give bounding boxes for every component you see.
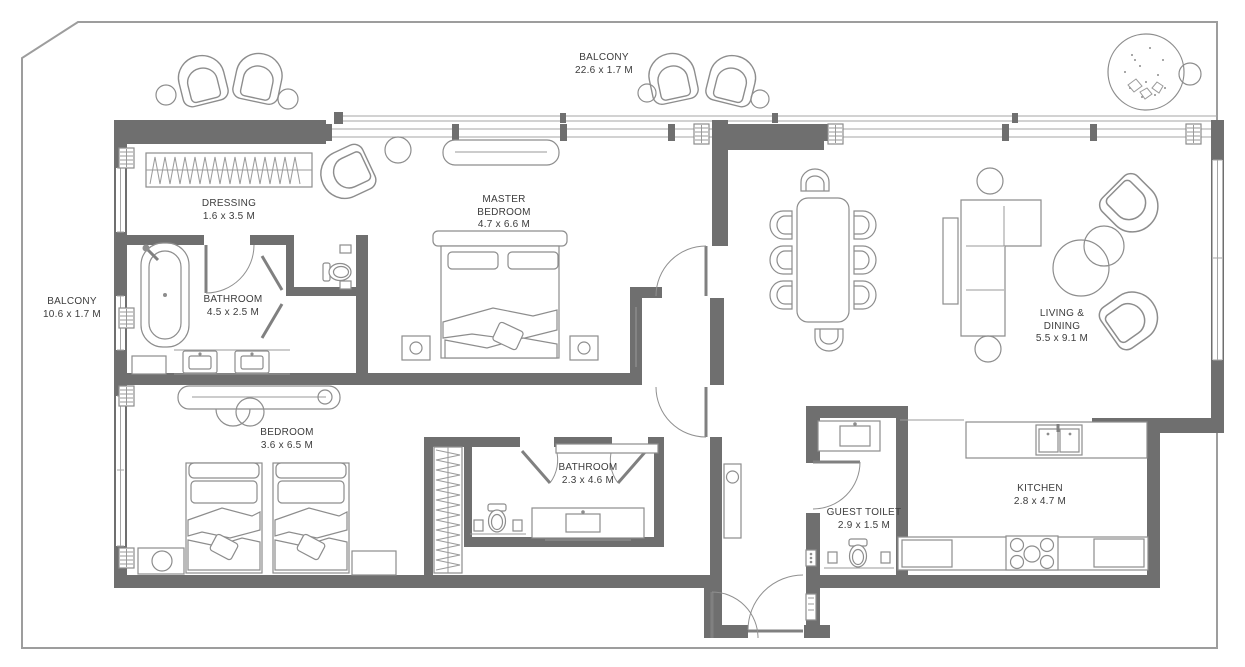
room-dims: 4.7 x 6.6 M (477, 219, 530, 232)
room-label-dressing: DRESSING 1.6 x 3.5 M (202, 198, 256, 223)
nightstand-icon (138, 548, 184, 574)
dining-table-icon (797, 198, 849, 322)
armchair-icon (1095, 169, 1167, 241)
plant-icon (977, 168, 1003, 194)
room-label-living-dining: LIVING & DINING 5.5 x 9.1 M (1036, 308, 1088, 346)
room-name: BEDROOM (477, 207, 530, 220)
master-wc-area (323, 245, 351, 289)
master-bed-icon (433, 231, 567, 358)
dining-set (770, 169, 876, 351)
room-label-guest-toilet: GUEST TOILET 2.9 x 1.5 M (827, 507, 902, 532)
room-name: LIVING & (1036, 308, 1088, 321)
armchair-icon (313, 141, 379, 206)
vanity-icon (532, 508, 644, 538)
floor-plan: BALCONY 22.6 x 1.7 M BALCONY 10.6 x 1.7 … (0, 0, 1245, 667)
sofa-side-table (943, 218, 958, 304)
room-dims: 3.6 x 6.5 M (260, 440, 313, 453)
room-label-master-bathroom: BATHROOM 4.5 x 2.5 M (203, 294, 262, 319)
nightstand-icon (570, 336, 598, 360)
balcony-railing (334, 112, 1217, 124)
coffee-table-icon (1053, 240, 1109, 296)
plant-icon (975, 336, 1001, 362)
room-name: DRESSING (202, 198, 256, 211)
room-name: MASTER (477, 194, 530, 207)
room-dims: 5.5 x 9.1 M (1036, 333, 1088, 346)
dressing-wardrobe (146, 153, 312, 187)
bench-icon (352, 551, 396, 575)
room-dims: 4.5 x 2.5 M (203, 307, 262, 320)
accessory-icon (340, 281, 351, 289)
room-label-bathroom: BATHROOM 2.3 x 4.6 M (558, 462, 617, 487)
balcony-lounge-area (156, 49, 769, 109)
accessory-icon (828, 552, 837, 563)
accessory-icon (513, 520, 522, 531)
room-name: BALCONY (43, 296, 101, 309)
room-label-bedroom: BEDROOM 3.6 x 6.5 M (260, 427, 313, 452)
nightstand-icon (402, 336, 430, 360)
room-label-kitchen: KITCHEN 2.8 x 4.7 M (1014, 483, 1066, 508)
toilet-icon (849, 539, 867, 567)
stove-icon (1006, 536, 1058, 570)
duct-shaft (132, 356, 166, 374)
room-name: BEDROOM (260, 427, 313, 440)
bedroom-furniture (138, 386, 396, 575)
planter-icon (1108, 34, 1201, 110)
guest-toilet-fixtures (818, 421, 894, 568)
shelf-icon (556, 444, 658, 453)
room-dims: 2.9 x 1.5 M (827, 520, 902, 533)
side-table-icon (385, 137, 411, 163)
hall-console (724, 464, 741, 538)
accessory-icon (881, 552, 890, 563)
bed-icon (186, 463, 262, 573)
room-dims: 2.3 x 4.6 M (558, 475, 617, 488)
side-table-icon (751, 90, 769, 108)
sofa-icon (961, 200, 1041, 336)
armchair-icon (1095, 283, 1167, 354)
bed-icon (273, 463, 349, 573)
room-label-master-bedroom: MASTER BEDROOM 4.7 x 6.6 M (477, 194, 530, 232)
room-name: BALCONY (575, 52, 633, 65)
room-label-balcony-top: BALCONY 22.6 x 1.7 M (575, 52, 633, 77)
room-name: DINING (1036, 321, 1088, 334)
coffee-table-icon (1084, 226, 1124, 266)
room-name: BATHROOM (558, 462, 617, 475)
side-table-icon (278, 89, 298, 109)
side-table-icon (156, 85, 176, 105)
room-dims: 22.6 x 1.7 M (575, 65, 633, 78)
room-dims: 2.8 x 4.7 M (1014, 496, 1066, 509)
room-dims: 10.6 x 1.7 M (43, 309, 101, 322)
bathroom2-fixtures (470, 444, 658, 540)
master-vanity (132, 350, 290, 374)
accessory-icon (340, 245, 351, 253)
desk-chair-icon (216, 409, 250, 426)
room-name: GUEST TOILET (827, 507, 902, 520)
room-label-balcony-left: BALCONY 10.6 x 1.7 M (43, 296, 101, 321)
toilet-icon (488, 504, 506, 532)
master-bathtub-icon (141, 243, 189, 347)
accessory-icon (474, 520, 483, 531)
room-name: KITCHEN (1014, 483, 1066, 496)
wardrobe-icon (434, 447, 462, 573)
room-dims: 1.6 x 3.5 M (202, 211, 256, 224)
room-name: BATHROOM (203, 294, 262, 307)
master-bedroom-furniture (313, 137, 598, 360)
